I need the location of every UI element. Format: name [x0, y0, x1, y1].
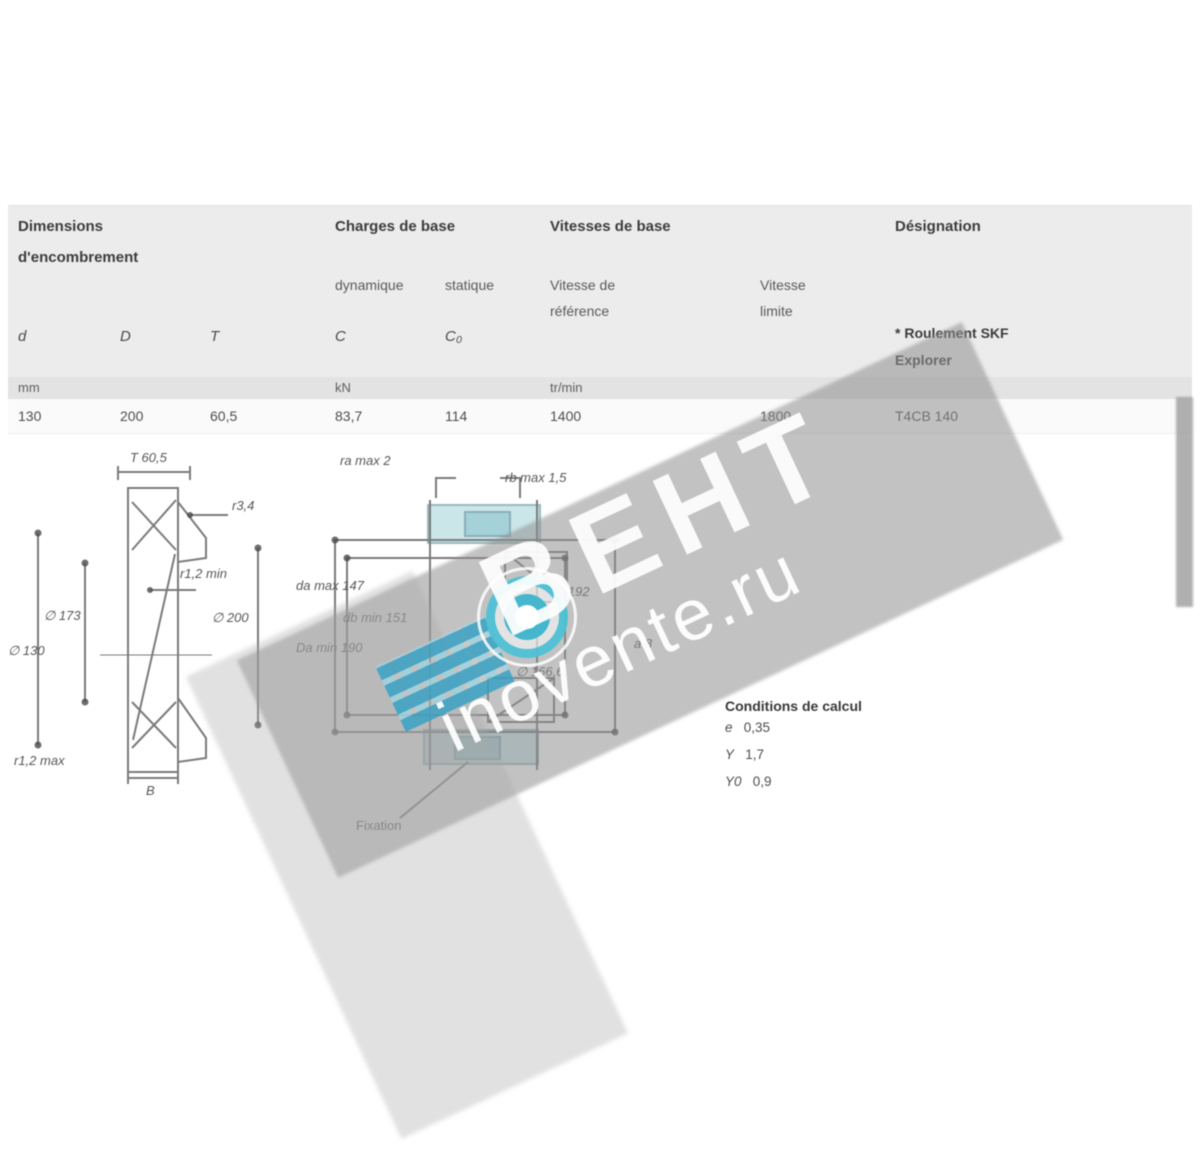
dim-label-d1: ∅ 173 [44, 608, 81, 623]
symbol-D: D [120, 328, 131, 345]
value-d: 130 [18, 408, 41, 424]
dimensions-title-line2: d'encombrement [18, 242, 138, 273]
unit-trmin: tr/min [550, 380, 583, 395]
calc-e: e 0,35 [725, 714, 862, 741]
calculation-factors-block: Conditions de calcul e 0,35 Y 1,7 Y0 0,9 [725, 698, 862, 795]
dim-label-r34: r3,4 [232, 498, 254, 513]
unit-mm: mm [18, 380, 40, 395]
col-group-dimensions: Dimensions d'encombrement [18, 211, 138, 273]
col-group-speeds: Vitesses de base [550, 211, 671, 242]
subheader-dynamic: dynamique [335, 272, 404, 298]
symbol-C: C [335, 328, 346, 345]
bearing-datasheet-page: Dimensions d'encombrement Charges de bas… [0, 0, 1200, 1165]
value-ref-speed: 1400 [550, 408, 581, 424]
subheader-reference-speed: Vitesse de référence [550, 272, 615, 324]
value-C0: 114 [445, 408, 467, 424]
symbol-d: d [18, 328, 26, 345]
dimensions-title-line1: Dimensions [18, 211, 138, 242]
value-T: 60,5 [210, 408, 237, 424]
dim-label-da: da max 147 [296, 578, 365, 593]
dim-label-d: ∅ 130 [8, 643, 45, 658]
col-group-load-ratings: Charges de base [335, 211, 455, 242]
col-group-designation: Désignation [895, 211, 981, 242]
symbol-T: T [210, 328, 219, 345]
calc-y: Y 1,7 [725, 741, 862, 768]
dim-label-ra: ra max 2 [340, 453, 391, 468]
subheader-static: statique [445, 272, 494, 298]
symbol-C0: C₀ [445, 328, 462, 345]
value-C: 83,7 [335, 408, 362, 424]
calc-title: Conditions de calcul [725, 698, 862, 714]
dim-label-r12min: r1,2 min [180, 566, 227, 581]
table-units-band [8, 377, 1192, 399]
dim-label-T: T 60,5 [130, 450, 168, 465]
table-data-band [8, 399, 1192, 434]
dim-label-r12max: r1,2 max [14, 753, 65, 768]
dim-label-B: B [146, 783, 155, 798]
unit-kn: kN [335, 380, 351, 395]
dim-label-D: ∅ 200 [212, 610, 249, 625]
value-D: 200 [120, 408, 143, 424]
calc-y0: Y0 0,9 [725, 768, 862, 795]
subheader-limiting-speed: Vitesse limite [760, 272, 806, 324]
outer-ring-top [178, 502, 206, 562]
watermark-right-bar [1176, 397, 1193, 607]
dim-label-rb: rb max 1,5 [505, 470, 567, 485]
